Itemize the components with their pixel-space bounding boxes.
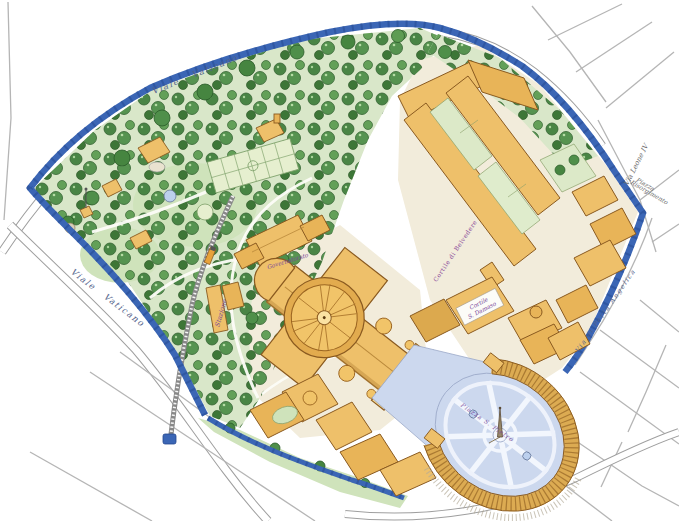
palace-tower [530, 306, 542, 318]
vatican-city-map: Viale Vaticano Viale Vaticano Via Leone … [0, 0, 679, 521]
sacristy-dome [303, 391, 317, 405]
radio-mast-top [85, 188, 88, 191]
vatican-city-map-canvas: Viale Vaticano Viale Vaticano Via Leone … [0, 0, 679, 521]
road-northwest-stub [4, 2, 11, 220]
round-flowerbed [197, 204, 213, 220]
church-tower [274, 114, 280, 123]
garden-fountain [164, 190, 176, 202]
railway-tunnel-gate [163, 434, 176, 444]
casina-courtyard [149, 162, 165, 172]
